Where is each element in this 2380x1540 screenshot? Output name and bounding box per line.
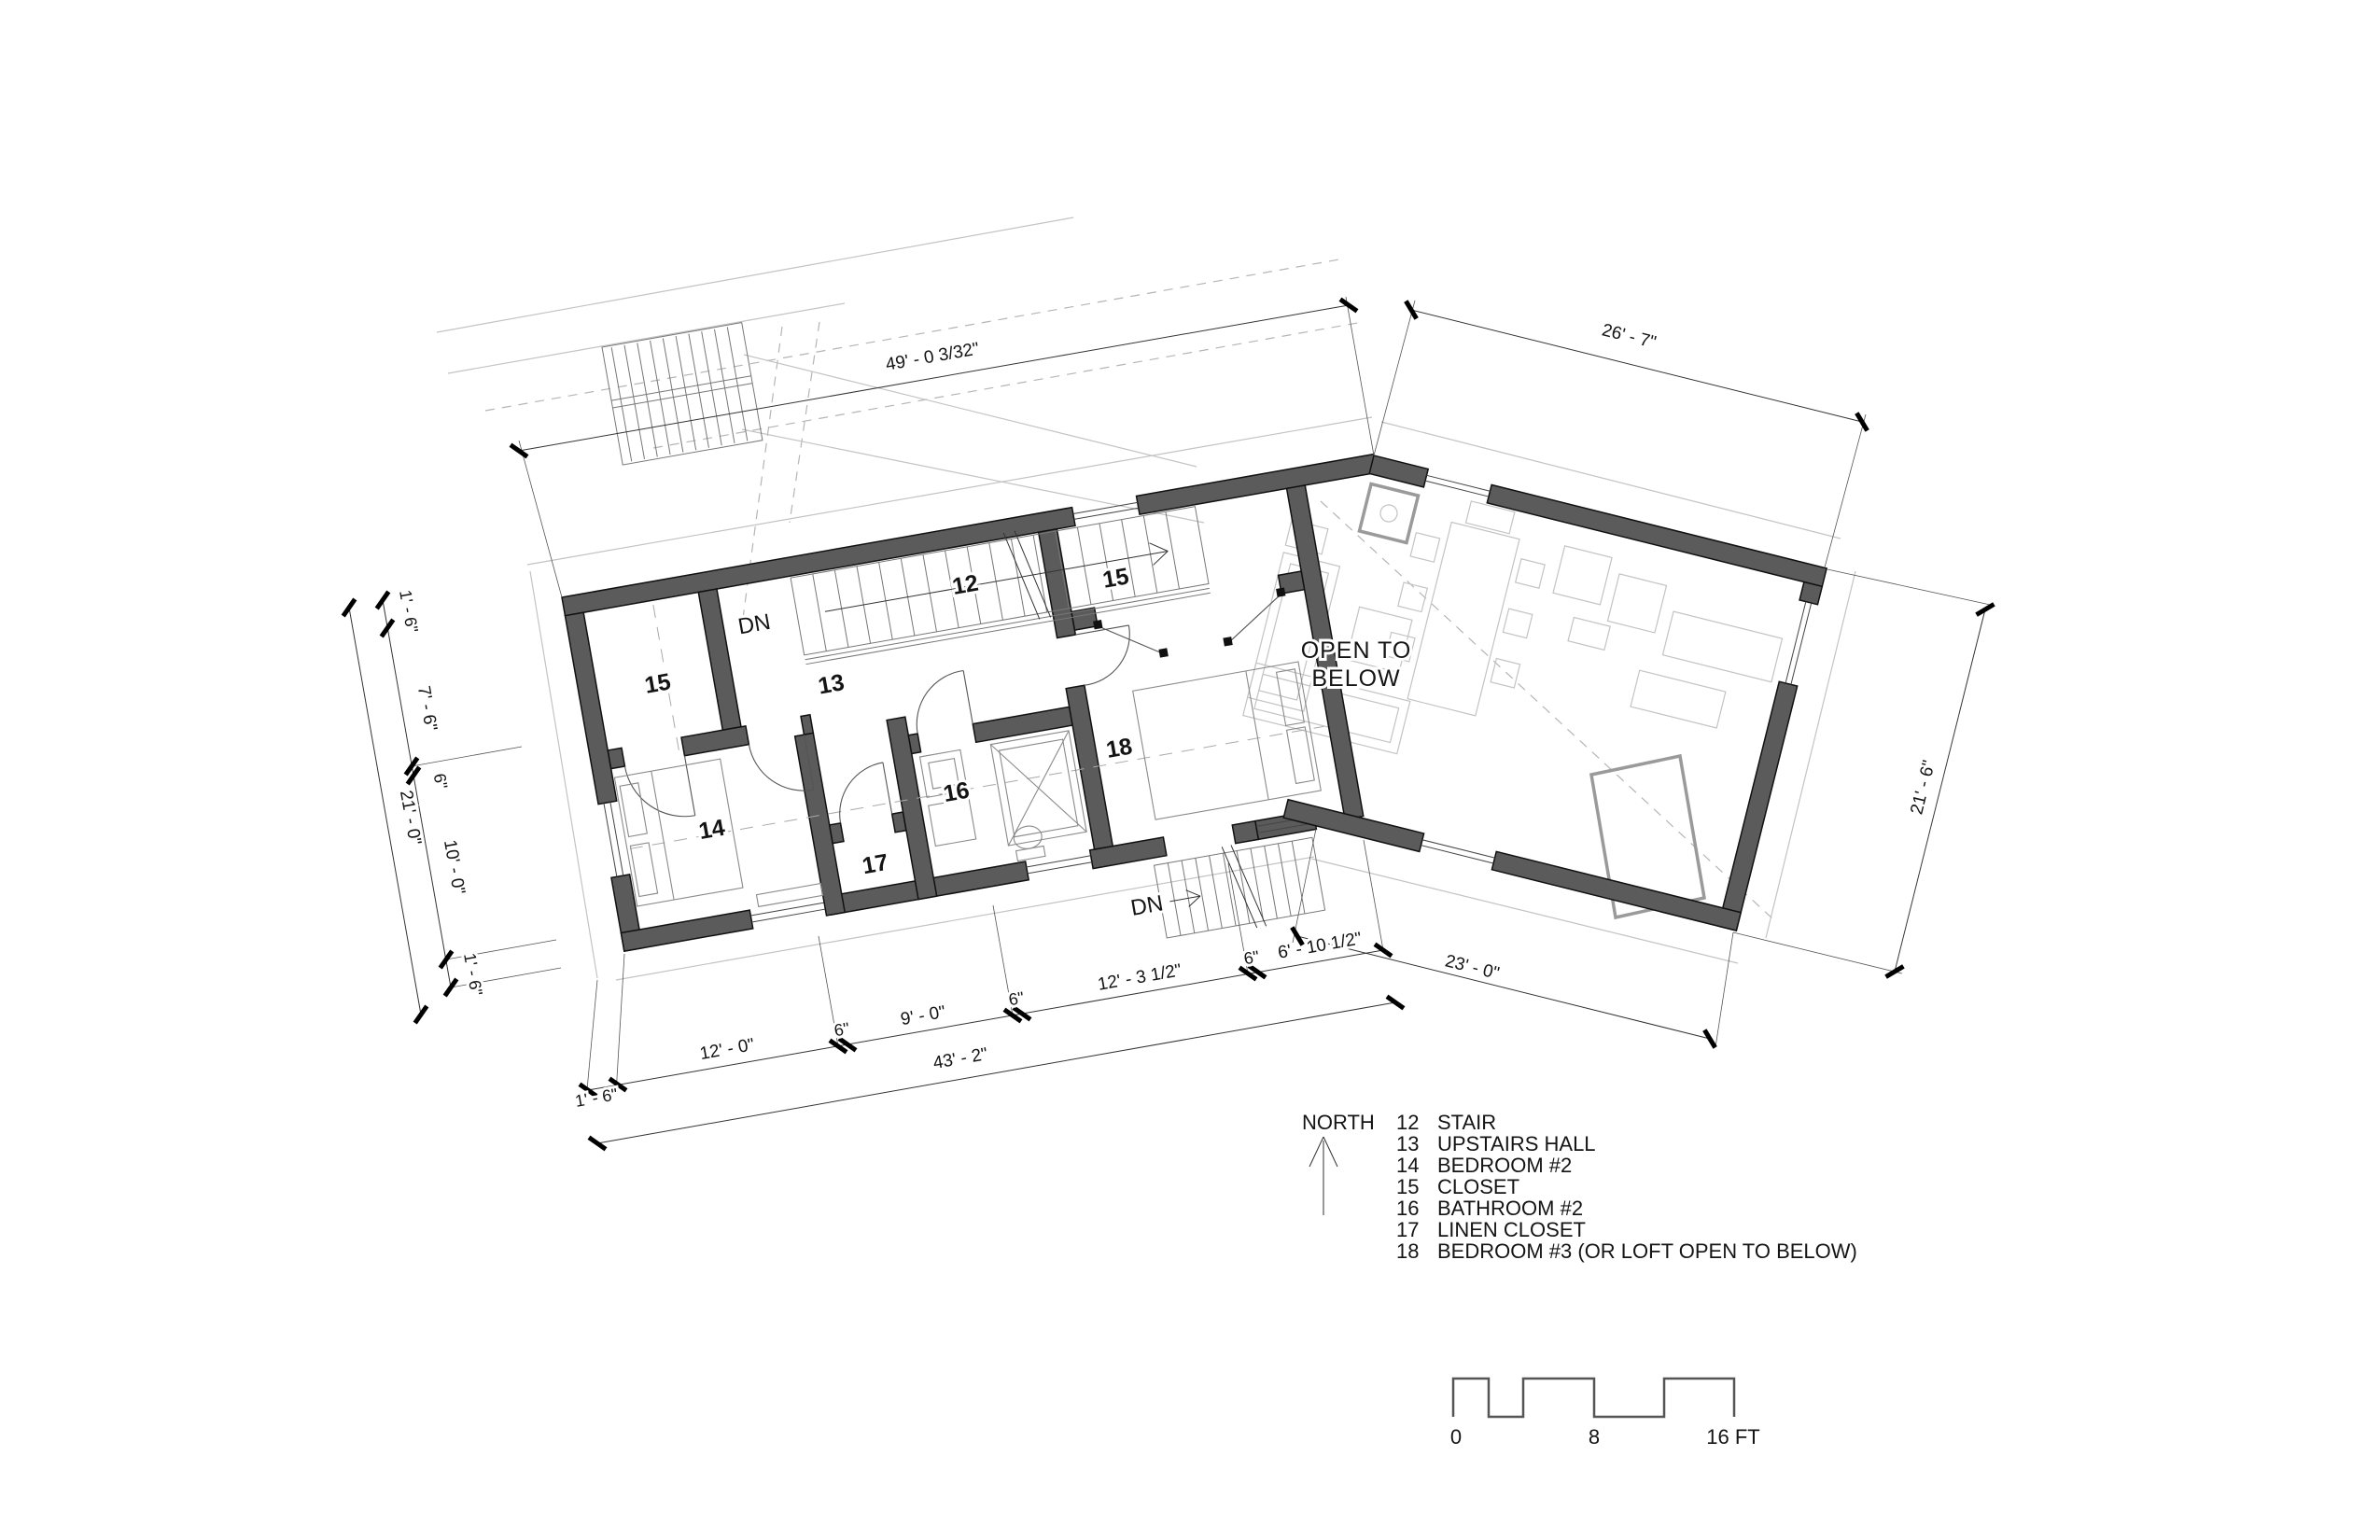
open-to-below-line1: OPEN TO xyxy=(1301,637,1412,664)
dim-chain-4: 6" xyxy=(1007,988,1026,1010)
legend-rows: 12 STAIR 13 UPSTAIRS HALL 14 BEDROOM #2 … xyxy=(1396,1111,1857,1263)
legend-name-14: BEDROOM #2 xyxy=(1437,1154,1572,1177)
dim-chain-5: 12' - 3 1/2" xyxy=(1097,960,1183,994)
room-tag-closet-a: 15 xyxy=(643,668,673,698)
scale-label-0: 0 xyxy=(1450,1425,1462,1449)
room-tag-stair: 12 xyxy=(950,570,980,600)
dim-left-4: 1' - 6" xyxy=(460,952,486,998)
ghost-dining-set xyxy=(1377,490,1555,723)
floor-plan-sheet: 49' - 0 3/32" 26' - 7" 21' - 6" 23' - 0"… xyxy=(0,0,2380,1540)
legend-name-13: UPSTAIRS HALL xyxy=(1437,1132,1596,1155)
dim-chain-7: 6' - 10 1/2" xyxy=(1277,929,1364,962)
room-tag-bathroom2: 16 xyxy=(942,777,972,807)
legend: NORTH 12 STAIR 13 UPSTAIRS HALL 14 BEDRO… xyxy=(1302,1111,1857,1263)
legend-name-17: LINEN CLOSET xyxy=(1437,1218,1586,1241)
dim-chain-2: 6" xyxy=(833,1019,851,1041)
room-tag-linen: 17 xyxy=(861,849,890,879)
scale-label-8: 8 xyxy=(1589,1425,1600,1449)
legend-num-16: 16 xyxy=(1396,1197,1419,1220)
dim-left-3: 10' - 0" xyxy=(440,838,469,896)
dim-right-side: 21' - 6" xyxy=(1907,759,1939,817)
legend-num-18: 18 xyxy=(1396,1239,1419,1263)
dim-top-right: 26' - 7" xyxy=(1600,320,1658,353)
dim-upper-overall: 49' - 0 3/32" xyxy=(884,339,980,374)
legend-num-15: 15 xyxy=(1396,1175,1419,1198)
ghost-skylight-box xyxy=(1359,483,1418,542)
legend-num-12: 12 xyxy=(1396,1111,1419,1134)
dim-left-0: 1' - 6" xyxy=(396,589,422,635)
legend-num-14: 14 xyxy=(1396,1154,1419,1177)
dim-chain-0: 1' - 6" xyxy=(574,1085,620,1111)
legend-name-15: CLOSET xyxy=(1437,1175,1519,1198)
dim-left-1: 7' - 6" xyxy=(413,684,441,732)
ghost-stair-top-left xyxy=(602,323,763,465)
room-tag-bedroom2: 14 xyxy=(697,815,727,845)
dim-left-2: 6" xyxy=(430,772,452,791)
scale-bar: 0 8 16 FT xyxy=(1450,1379,1760,1449)
room-tag-closet-b: 15 xyxy=(1100,563,1130,593)
floor-plan-canvas: 49' - 0 3/32" 26' - 7" 21' - 6" 23' - 0"… xyxy=(0,0,2380,1540)
dn-label-interior: DN xyxy=(736,609,773,640)
left-wing-walls xyxy=(562,455,1435,951)
dim-bottom-right: 23' - 0" xyxy=(1443,951,1501,984)
dn-label-exterior: DN xyxy=(1129,890,1166,921)
ghost-lounge xyxy=(1531,546,1791,738)
right-wing xyxy=(1283,455,1827,931)
legend-name-18: BEDROOM #3 (OR LOFT OPEN TO BELOW) xyxy=(1437,1239,1857,1263)
dim-chain-3: 9' - 0" xyxy=(899,1002,946,1029)
room-tag-bedroom3: 18 xyxy=(1104,734,1134,763)
dim-left-overall: 21' - 0" xyxy=(396,789,425,847)
legend-name-16: BATHROOM #2 xyxy=(1437,1197,1583,1220)
legend-num-17: 17 xyxy=(1396,1218,1419,1241)
dim-bottom-overall: 43' - 2" xyxy=(931,1044,989,1073)
legend-name-12: STAIR xyxy=(1437,1111,1496,1134)
room-tag-hall: 13 xyxy=(816,669,846,699)
right-wing-walls xyxy=(1283,455,1827,931)
open-to-below-line2: BELOW xyxy=(1311,665,1400,692)
scale-label-16: 16 FT xyxy=(1706,1425,1759,1449)
north-arrow-icon xyxy=(1309,1137,1337,1215)
north-label: NORTH xyxy=(1302,1111,1375,1134)
dim-chain-6: 6" xyxy=(1242,947,1261,969)
dim-chain-1: 12' - 0" xyxy=(698,1035,756,1064)
legend-num-13: 13 xyxy=(1396,1132,1419,1155)
